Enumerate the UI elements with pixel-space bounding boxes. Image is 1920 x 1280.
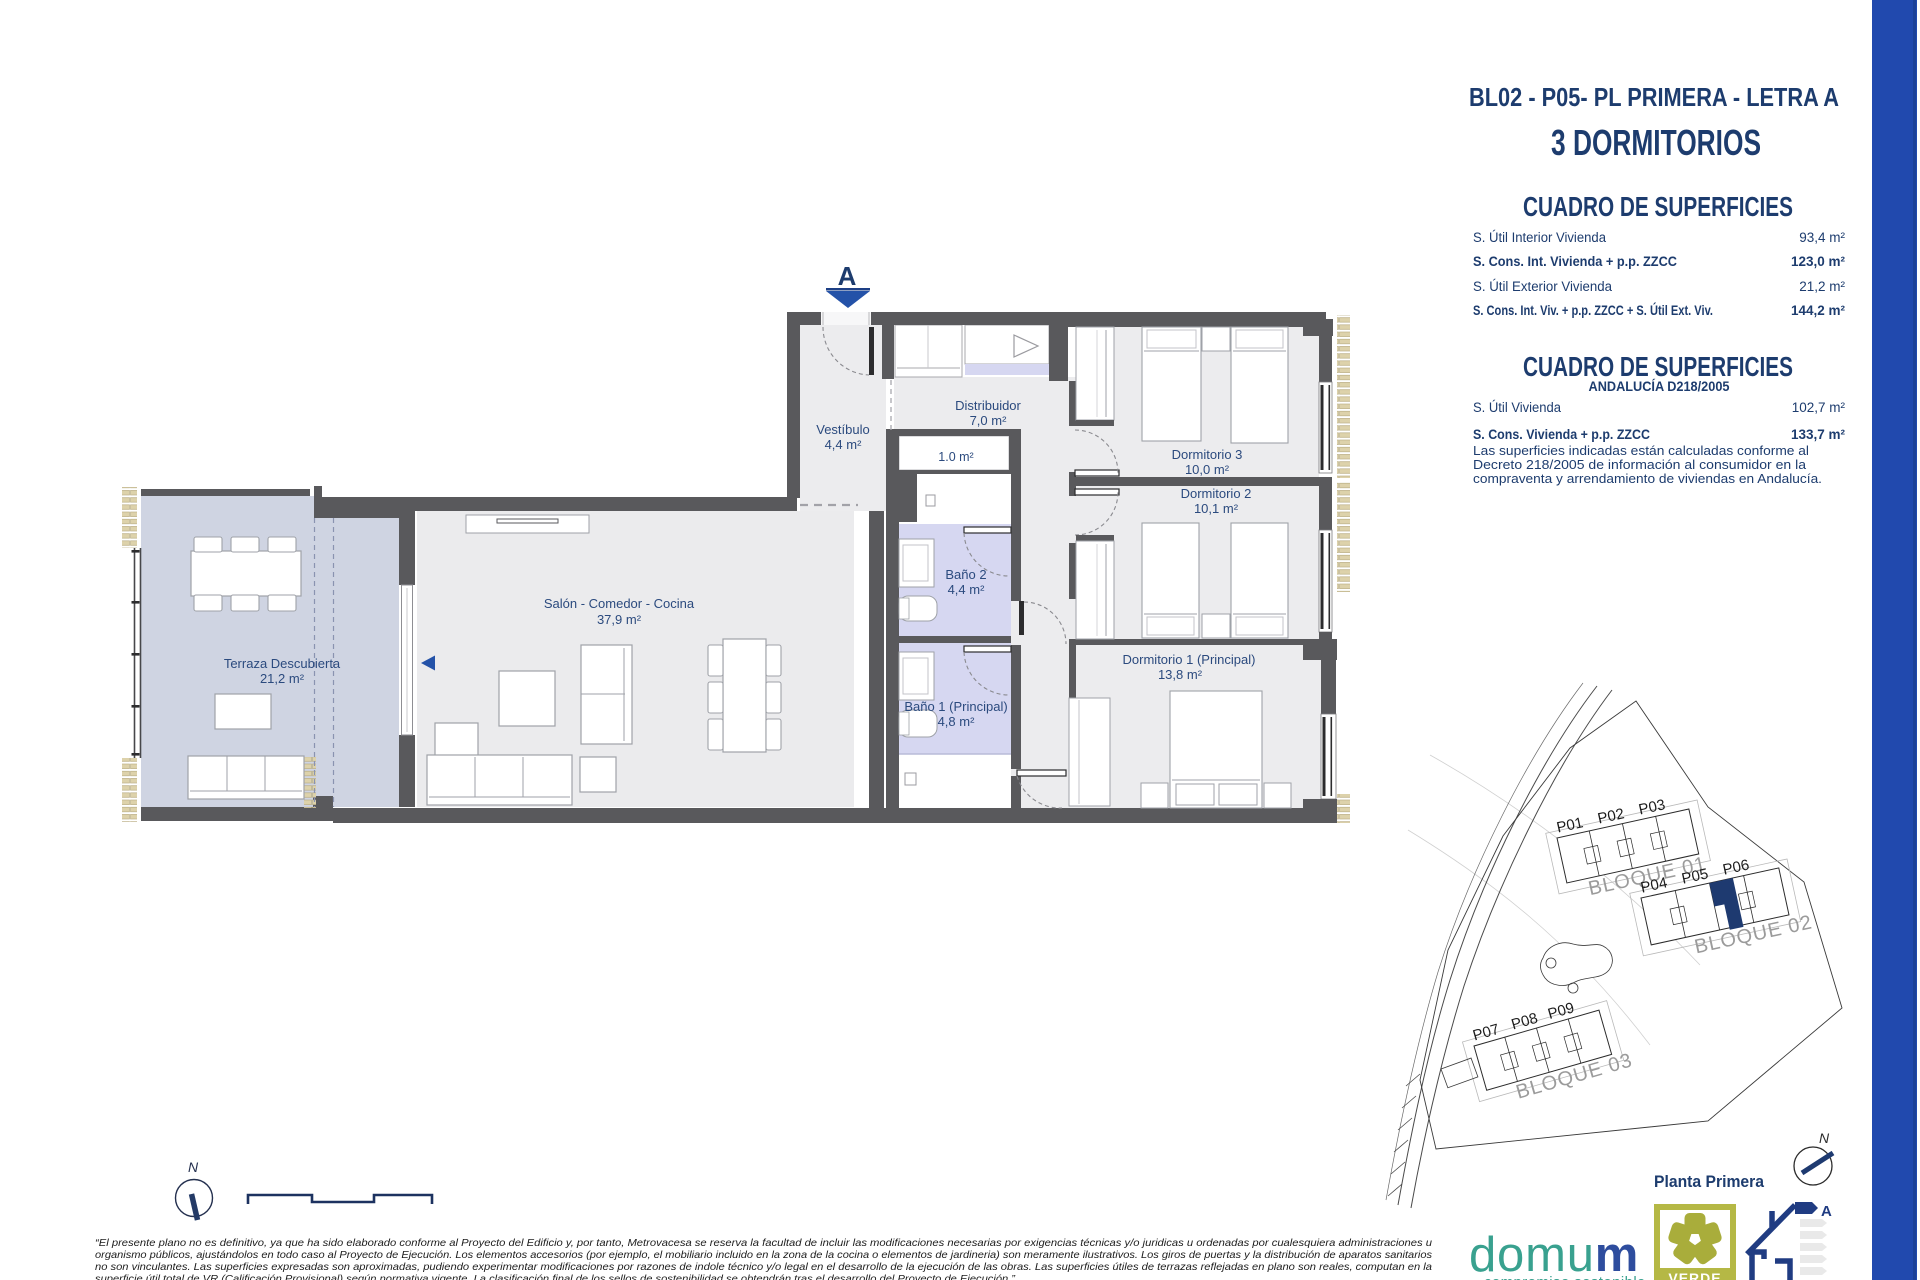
svg-text:Dormitorio 1 (Principal): Dormitorio 1 (Principal) xyxy=(1123,652,1256,667)
svg-text:Dormitorio 2: Dormitorio 2 xyxy=(1181,486,1252,501)
svg-text:S. Útil Interior Vivienda: S. Útil Interior Vivienda xyxy=(1473,230,1606,245)
svg-text:no son vinculantes. Las superf: no son vinculantes. Las superficies expr… xyxy=(95,1262,1432,1273)
svg-text:Planta Primera: Planta Primera xyxy=(1654,1173,1765,1191)
svg-text:Terraza Descubierta: Terraza Descubierta xyxy=(224,656,341,671)
svg-text:“El presente plano no es defin: “El presente plano no es definitivo, ya … xyxy=(95,1238,1432,1249)
svg-text:S. Cons. Vivienda + p.p. ZZCC: S. Cons. Vivienda + p.p. ZZCC xyxy=(1473,427,1650,442)
svg-text:VERDE: VERDE xyxy=(1668,1270,1721,1280)
svg-text:Las superficies indicadas está: Las superficies indicadas están calculad… xyxy=(1473,443,1809,458)
svg-text:102,7 m²: 102,7 m² xyxy=(1792,400,1846,415)
svg-text:N: N xyxy=(1819,1130,1830,1146)
svg-text:Vestíbulo: Vestíbulo xyxy=(816,422,870,437)
svg-text:21,2 m²: 21,2 m² xyxy=(260,671,305,686)
svg-text:CUADRO DE SUPERFICIES: CUADRO DE SUPERFICIES xyxy=(1523,191,1793,222)
svg-text:compraventa y arrendamiento de: compraventa y arrendamiento de viviendas… xyxy=(1473,471,1822,486)
svg-text:1.0 m²: 1.0 m² xyxy=(938,450,973,464)
svg-text:A: A xyxy=(1821,1203,1832,1220)
svg-text:21,2 m²: 21,2 m² xyxy=(1799,279,1845,294)
svg-text:CUADRO DE SUPERFICIES: CUADRO DE SUPERFICIES xyxy=(1523,351,1793,382)
svg-text:37,9 m²: 37,9 m² xyxy=(597,612,642,627)
svg-text:7,0 m²: 7,0 m² xyxy=(970,413,1008,428)
svg-text:domum: domum xyxy=(1469,1228,1639,1280)
svg-text:133,7 m²: 133,7 m² xyxy=(1791,427,1846,442)
svg-text:93,4 m²: 93,4 m² xyxy=(1799,230,1845,245)
svg-text:organismo públicos, ajustándol: organismo públicos, ajustándolos en todo… xyxy=(95,1250,1432,1261)
svg-text:Baño 2: Baño 2 xyxy=(945,567,986,582)
svg-text:S. Útil Exterior Vivienda: S. Útil Exterior Vivienda xyxy=(1473,279,1612,294)
svg-text:10,1 m²: 10,1 m² xyxy=(1194,501,1239,516)
svg-text:superficie útil total de VR (C: superficie útil total de VR (Calificació… xyxy=(95,1274,1016,1280)
svg-text:BL02 - P05- PL PRIMERA - LETRA: BL02 - P05- PL PRIMERA - LETRA A xyxy=(1469,82,1839,112)
svg-text:S. Cons. Int. Vivienda + p.p.: S. Cons. Int. Vivienda + p.p. ZZCC xyxy=(1473,254,1677,269)
svg-text:Salón - Comedor - Cocina: Salón - Comedor - Cocina xyxy=(544,596,695,611)
svg-text:3 DORMITORIOS: 3 DORMITORIOS xyxy=(1551,122,1761,163)
svg-text:ANDALUCÍA D218/2005: ANDALUCÍA D218/2005 xyxy=(1589,379,1730,394)
svg-text:Distribuidor: Distribuidor xyxy=(955,398,1021,413)
svg-text:Baño 1 (Principal): Baño 1 (Principal) xyxy=(904,699,1007,714)
svg-text:4,4 m²: 4,4 m² xyxy=(948,582,986,597)
svg-text:13,8 m²: 13,8 m² xyxy=(1158,667,1203,682)
svg-text:N: N xyxy=(188,1159,199,1175)
svg-text:144,2 m²: 144,2 m² xyxy=(1791,303,1846,318)
svg-text:Decreto 218/2005 de informació: Decreto 218/2005 de información al consu… xyxy=(1473,457,1807,472)
svg-text:123,0 m²: 123,0 m² xyxy=(1791,254,1846,269)
svg-text:10,0 m²: 10,0 m² xyxy=(1185,462,1230,477)
svg-text:S. Útil Vivienda: S. Útil Vivienda xyxy=(1473,400,1561,415)
svg-text:compromiso sostenible: compromiso sostenible xyxy=(1484,1274,1646,1280)
svg-text:A: A xyxy=(838,261,857,291)
svg-text:Dormitorio 3: Dormitorio 3 xyxy=(1172,447,1243,462)
svg-text:4,4 m²: 4,4 m² xyxy=(825,437,863,452)
svg-text:4,8 m²: 4,8 m² xyxy=(938,714,976,729)
svg-text:S. Cons. Int. Viv. + p.p. ZZCC: S. Cons. Int. Viv. + p.p. ZZCC + S. Útil… xyxy=(1473,303,1713,318)
